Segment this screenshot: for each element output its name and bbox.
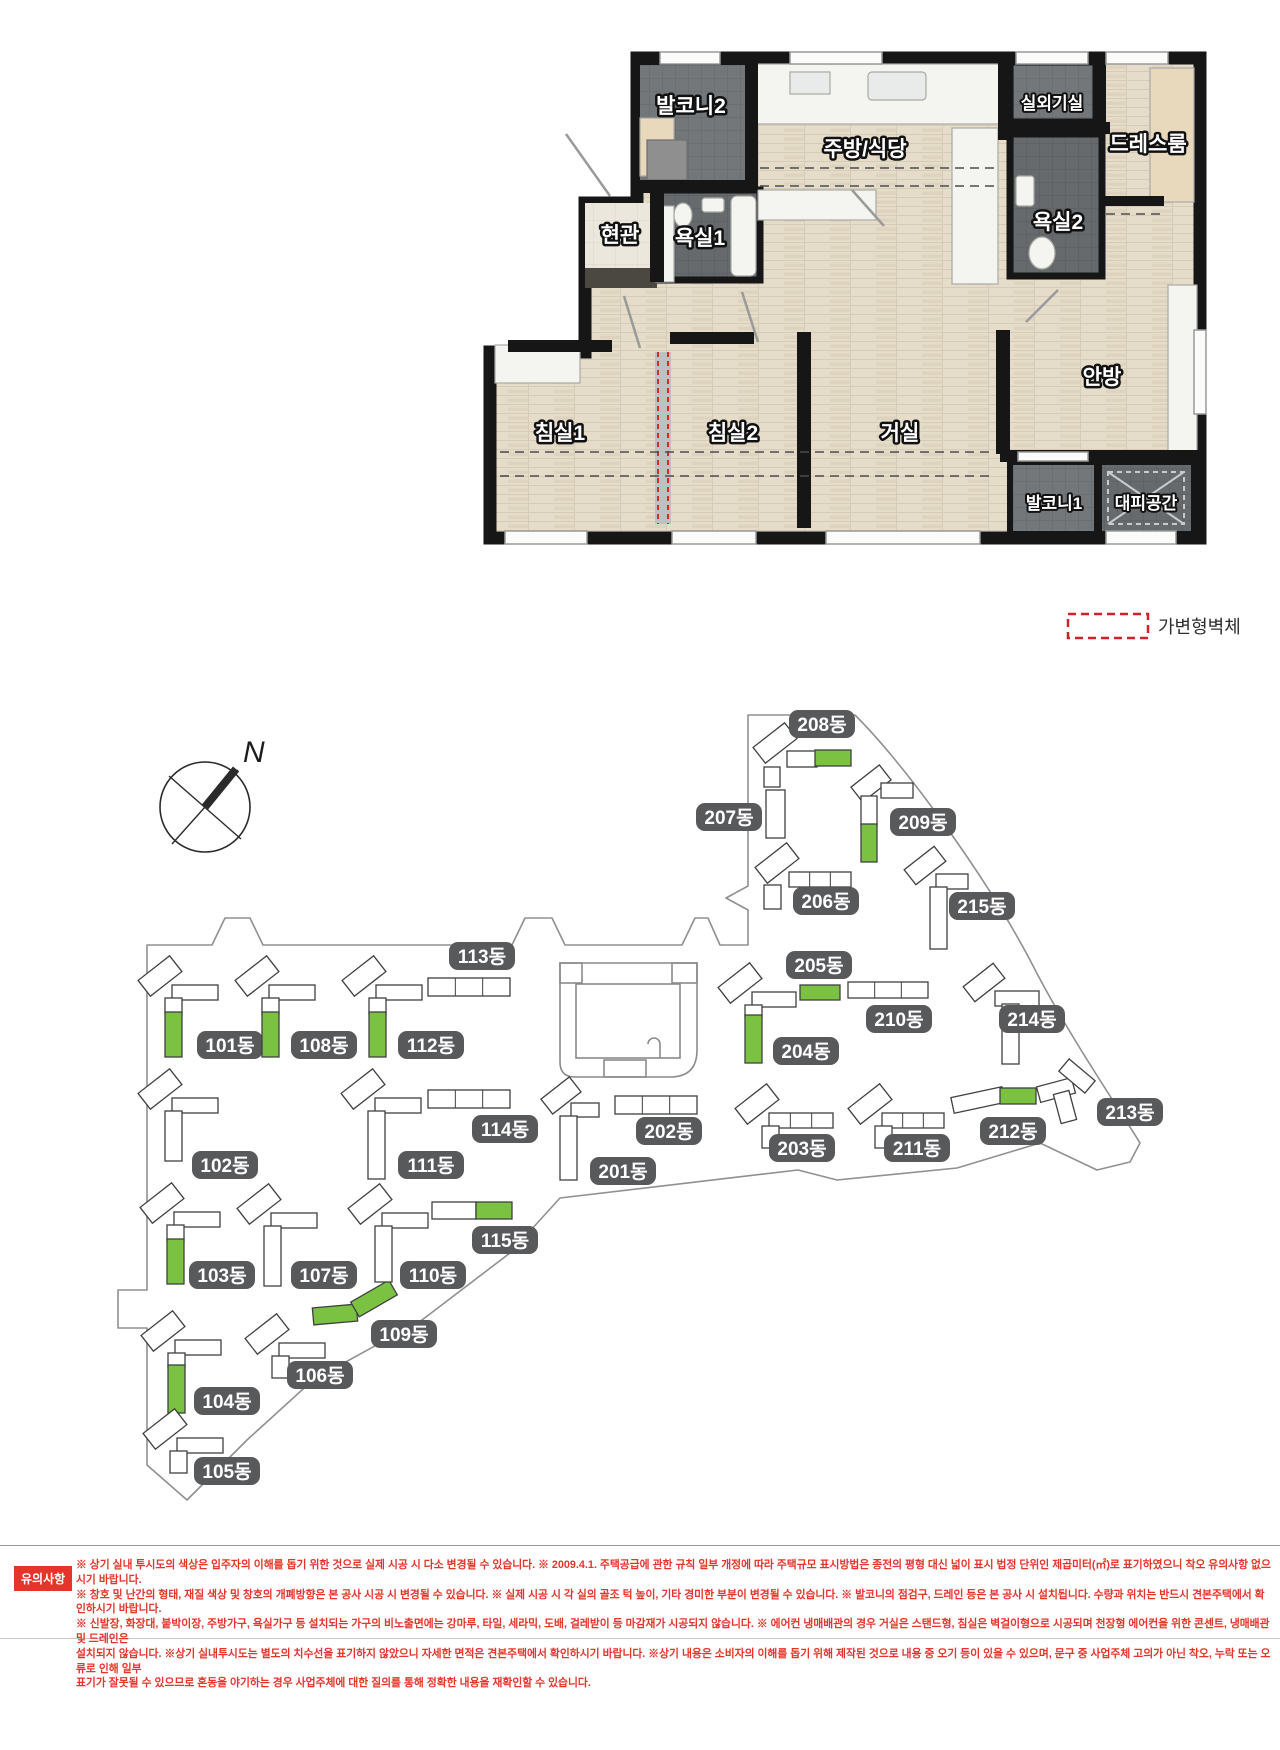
buildings-layer: 101동102동103동104동105동106동107동108동109동110동… xyxy=(138,710,1163,1485)
room-label-outdoor-unit: 실외기실 xyxy=(1021,94,1084,113)
room-label-kitchen: 주방/식당 xyxy=(823,138,906,161)
building-label-text: 106동 xyxy=(295,1366,344,1387)
building-label-text: 213동 xyxy=(1105,1103,1154,1124)
building-label-111: 111동 xyxy=(398,1151,464,1179)
building-label-text: 114동 xyxy=(481,1120,529,1141)
notice-line: ※ 창호 및 난간의 형태, 재질 색상 및 창호의 개폐방향은 본 공사 시공… xyxy=(76,1588,1271,1618)
notice-line: ※ 신발장, 화장대, 붙박이장, 주방가구, 욕실가구 등 설치되는 가구의 … xyxy=(76,1617,1271,1647)
building-label-text: 204동 xyxy=(781,1042,830,1063)
building-104: 104동 xyxy=(141,1311,260,1415)
room-label-balcony2: 발코니2 xyxy=(656,95,726,118)
notice-title-badge: 유의사항 xyxy=(14,1566,72,1591)
building-label-107: 107동 xyxy=(291,1261,357,1289)
room-label-dressroom: 드레스룸 xyxy=(1109,133,1186,156)
building-label-text: 214동 xyxy=(1007,1010,1056,1031)
building-label-112: 112동 xyxy=(398,1031,464,1059)
building-107: 107동 xyxy=(237,1184,357,1289)
legend-label: 가변형벽체 xyxy=(1158,617,1241,637)
building-label-text: 111동 xyxy=(407,1156,454,1177)
building-label-text: 115동 xyxy=(481,1231,529,1252)
room-label-bedroom2: 침실2 xyxy=(708,422,758,445)
building-label-text: 110동 xyxy=(409,1266,457,1287)
building-112: 112동 xyxy=(342,956,464,1059)
building-101: 101동 xyxy=(138,956,263,1059)
notice-line: 표기가 잘못될 수 있으므로 혼동을 야기하는 경우 사업주체에 대한 질의를 … xyxy=(76,1676,1271,1691)
building-label-text: 202동 xyxy=(644,1122,693,1143)
building-label-210: 210동 xyxy=(866,1005,932,1033)
brochure-page: { "legend": { "label": "가변형벽체" }, "floor… xyxy=(0,0,1280,1750)
room-label-bath2: 욕실2 xyxy=(1033,211,1083,234)
building-106: 106동 xyxy=(245,1314,353,1389)
building-label-text: 209동 xyxy=(898,813,947,834)
room-label-bath1: 욕실1 xyxy=(675,227,726,250)
site-plan: N 101동102동103동104동105동106동107동108동109동11… xyxy=(118,710,1163,1500)
building-102: 102동 xyxy=(138,1069,258,1179)
building-210: 210동 xyxy=(848,982,932,1033)
building-label-104: 104동 xyxy=(194,1387,260,1415)
page-canvas: 발코니2 주방/식당 실외기실 드레스룸 현관 욕실1 욕실2 침실1 침실2 … xyxy=(0,0,1280,1750)
building-207: 207동 xyxy=(696,790,785,838)
building-label-text: 210동 xyxy=(874,1010,923,1031)
building-label-212: 212동 xyxy=(980,1117,1046,1145)
notice-line: ※ 상기 실내 투시도의 색상은 입주자의 이해를 돕기 위한 것으로 실제 시… xyxy=(76,1558,1271,1588)
building-105: 105동 xyxy=(143,1409,260,1485)
building-214: 214동 xyxy=(963,963,1065,1064)
building-label-102: 102동 xyxy=(192,1151,258,1179)
building-label-113: 113동 xyxy=(449,942,515,970)
notice-line: 설치되지 않습니다. ※상기 실내투시도는 별도의 치수선을 표기하지 않았으니… xyxy=(76,1647,1271,1677)
building-label-202: 202동 xyxy=(636,1117,702,1145)
building-110: 110동 xyxy=(348,1184,466,1289)
building-label-206: 206동 xyxy=(793,887,859,915)
room-label-entrance: 현관 xyxy=(601,224,640,247)
building-label-text: 211동 xyxy=(893,1139,941,1160)
building-212: 212동 xyxy=(951,1087,1046,1145)
building-209: 209동 xyxy=(851,765,956,862)
building-109: 109동 xyxy=(312,1280,437,1348)
building-label-text: 107동 xyxy=(299,1266,348,1287)
building-label-114: 114동 xyxy=(472,1115,538,1143)
building-label-215: 215동 xyxy=(949,892,1015,920)
room-label-shelter: 대피공간 xyxy=(1115,494,1178,513)
building-label-text: 105동 xyxy=(202,1462,251,1483)
building-215: 215동 xyxy=(904,846,1015,949)
building-103: 103동 xyxy=(140,1183,255,1289)
building-label-text: 108동 xyxy=(299,1036,348,1057)
building-202: 202동 xyxy=(615,1096,702,1145)
variable-wall xyxy=(655,352,671,524)
building-213: 213동 xyxy=(1037,1059,1163,1126)
building-label-text: 112동 xyxy=(407,1036,455,1057)
building-label-text: 103동 xyxy=(197,1266,246,1287)
building-label-103: 103동 xyxy=(189,1261,255,1289)
building-label-213: 213동 xyxy=(1097,1098,1163,1126)
building-label-text: 102동 xyxy=(200,1156,249,1177)
compass xyxy=(160,762,250,852)
building-label-208: 208동 xyxy=(789,710,855,738)
building-115: 115동 xyxy=(432,1202,538,1254)
floor-plan: 발코니2 주방/식당 실외기실 드레스룸 현관 욕실1 욕실2 침실1 침실2 … xyxy=(490,52,1206,544)
building-label-205: 205동 xyxy=(786,951,852,979)
room-label-living: 거실 xyxy=(881,422,920,445)
room-label-bedroom1: 침실1 xyxy=(535,422,586,445)
building-206: 206동 xyxy=(755,843,859,915)
building-label-text: 113동 xyxy=(458,947,506,968)
building-203: 203동 xyxy=(735,1084,835,1162)
building-label-201: 201동 xyxy=(590,1157,656,1185)
building-label-101: 101동 xyxy=(197,1031,263,1059)
room-label-balcony1: 발코니1 xyxy=(1026,494,1082,513)
building-label-115: 115동 xyxy=(472,1226,538,1254)
building-label-text: 206동 xyxy=(801,892,850,913)
building-label-207: 207동 xyxy=(696,803,762,831)
building-211: 211동 xyxy=(848,1084,950,1162)
variable-wall-legend: 가변형벽체 xyxy=(1068,614,1241,638)
building-label-203: 203동 xyxy=(769,1134,835,1162)
compass-north-label: N xyxy=(243,736,265,769)
entrance-mat xyxy=(585,268,657,288)
building-label-211: 211동 xyxy=(884,1134,950,1162)
building-label-text: 208동 xyxy=(797,715,846,736)
building-113: 113동 xyxy=(428,942,515,996)
building-label-text: 205동 xyxy=(794,956,843,977)
building-label-110: 110동 xyxy=(400,1261,466,1289)
building-111: 111동 xyxy=(341,1069,464,1179)
building-label-text: 215동 xyxy=(957,897,1006,918)
building-label-text: 104동 xyxy=(202,1392,251,1413)
building-label-text: 203동 xyxy=(777,1139,826,1160)
building-label-text: 109동 xyxy=(379,1325,428,1346)
compass-needle xyxy=(205,769,236,807)
building-label-209: 209동 xyxy=(890,808,956,836)
building-label-text: 201동 xyxy=(598,1162,647,1183)
notice-section: 유의사항 ※ 상기 실내 투시도의 색상은 입주자의 이해를 돕기 위한 것으로… xyxy=(0,1545,1280,1639)
building-label-109: 109동 xyxy=(371,1320,437,1348)
building-label-204: 204동 xyxy=(773,1037,839,1065)
building-label-108: 108동 xyxy=(291,1031,357,1059)
notice-body: ※ 상기 실내 투시도의 색상은 입주자의 이해를 돕기 위한 것으로 실제 시… xyxy=(76,1558,1271,1691)
building-208: 208동 xyxy=(753,710,855,787)
building-label-text: 212동 xyxy=(988,1122,1037,1143)
building-label-106: 106동 xyxy=(287,1361,353,1389)
central-facility xyxy=(560,963,697,1077)
building-label-text: 101동 xyxy=(205,1036,254,1057)
building-label-214: 214동 xyxy=(999,1005,1065,1033)
building-114: 114동 xyxy=(428,1090,538,1143)
legend-swatch xyxy=(1068,614,1148,638)
building-label-105: 105동 xyxy=(194,1457,260,1485)
building-label-text: 207동 xyxy=(704,808,753,829)
outdoor-unit-floor xyxy=(1010,62,1096,122)
room-label-master: 안방 xyxy=(1083,366,1122,389)
